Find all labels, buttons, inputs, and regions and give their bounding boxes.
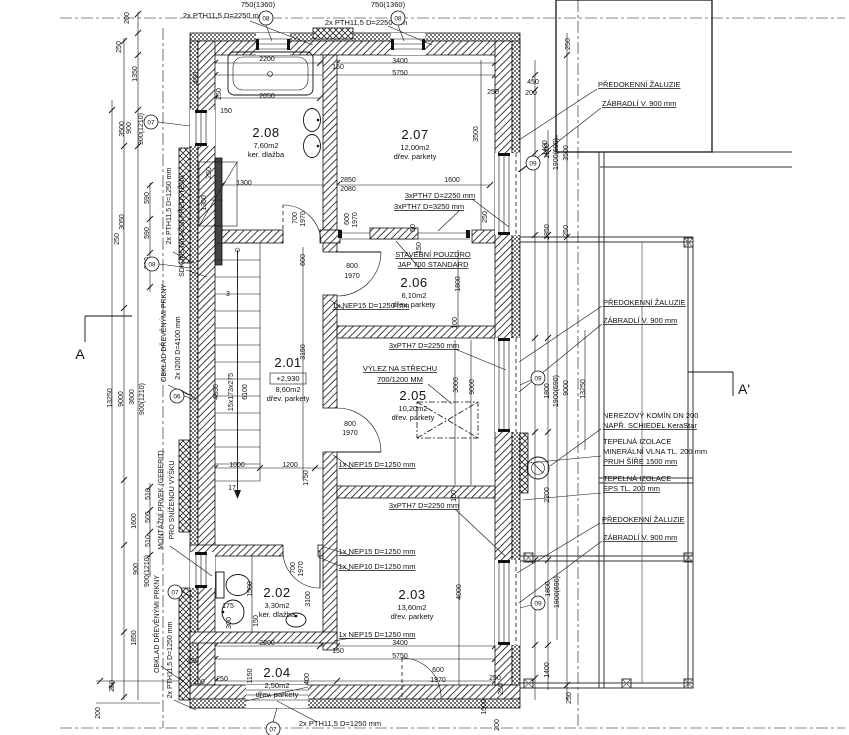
room-detail-label: 12,00m2	[400, 143, 429, 152]
left-note-label: 2x PTH11,5 D=1250 mm	[166, 167, 173, 244]
dim-label: 600	[300, 254, 307, 266]
dim-label: 900	[126, 122, 133, 134]
dim-label: 400	[304, 673, 311, 685]
dim-label: 900	[133, 563, 140, 575]
window-right-2	[495, 338, 520, 432]
section-mark-label: A	[75, 346, 85, 362]
right-note-label: TEPELNÁ IZOLACE	[603, 437, 671, 446]
left-note-label: MONTÁŽNÍ PRVEK (GEBERIT)	[156, 450, 165, 549]
dim-label: 1200	[282, 462, 298, 469]
dim-label: 1600	[131, 513, 138, 529]
window-right-3	[495, 560, 520, 645]
dim-label: 1970	[352, 212, 359, 228]
dim-label: 2200	[259, 640, 275, 647]
ref-marker-label: 09	[529, 160, 537, 167]
dim-label: 1850	[131, 630, 138, 646]
dim-label: 1800	[544, 143, 551, 159]
dim-label: 3600	[129, 389, 136, 405]
room-detail-label: dřev. parkety	[267, 394, 310, 403]
room-number-label: 2.07	[401, 127, 428, 142]
room-number-label: 2.03	[398, 587, 425, 602]
room-detail-label: ker. dlažba	[248, 150, 285, 159]
dim-label: 1970	[300, 211, 307, 227]
window-left-1	[190, 110, 215, 146]
chimney	[527, 457, 549, 479]
window-top-2	[391, 33, 425, 55]
dim-label: 250	[498, 683, 505, 695]
room-detail-label: +2,930	[276, 374, 299, 383]
dim-label: 4850	[213, 384, 220, 400]
room-number-label: 2.01	[274, 355, 301, 370]
dim-label: 700	[290, 562, 297, 574]
dim-label: 600	[344, 213, 351, 225]
right-note-label: PRUH ŠÍŘE 1500 mm	[603, 457, 677, 466]
dim-label: 200	[95, 707, 102, 719]
dim-label: 100	[452, 317, 459, 329]
dim-label: 50	[410, 224, 417, 232]
dim-label: 2050	[259, 93, 275, 100]
dim-label: 2850	[544, 224, 551, 240]
insulation-strip	[179, 440, 190, 532]
window-right-1	[495, 153, 520, 235]
plan-note-label: 1x NEP10 D=1250 mm	[339, 562, 416, 571]
right-note-label: PŘEDOKENNÍ ŽALUZIE	[602, 515, 685, 524]
dim-label: 250	[565, 38, 572, 50]
dim-label: 1970	[298, 561, 305, 577]
dim-label: 9000	[563, 380, 570, 396]
washbasin	[304, 109, 321, 132]
ref-marker-label: 08	[262, 15, 270, 22]
room-number-label: 2.06	[400, 275, 427, 290]
washbasin	[304, 135, 321, 158]
plan-note-label: 3xPTH7 D=2250 mm	[389, 341, 459, 350]
right-note-label: PŘEDOKENNÍ ŽALUZIE	[603, 298, 686, 307]
dim-label: 3500	[473, 126, 480, 142]
dim-label: 3	[226, 291, 230, 298]
right-note-label: EPS TL. 200 mm	[603, 484, 660, 493]
floor-plan-page: 2.082.072.062.012.052.022.032.047,60m2ke…	[0, 0, 849, 735]
right-note-label: TEPELNÁ IZOLACE	[603, 474, 671, 483]
pocket-door-jap	[338, 228, 470, 239]
plan-note-label: 2x PTH11,5 D=2250 mm	[183, 11, 265, 20]
room-detail-label: dřev. parkety	[391, 612, 434, 621]
dim-label: 250	[116, 41, 123, 53]
stairs	[215, 243, 260, 499]
dim-label: 900(1210)	[144, 555, 151, 587]
dim-label: 1970	[342, 430, 358, 437]
room-detail-label: 13,60m2	[397, 603, 426, 612]
dim-label: 900(1210)	[138, 113, 145, 145]
dim-label: 800	[346, 263, 358, 270]
dim-label: 250	[109, 680, 116, 692]
dim-label: 1900(690)	[553, 138, 560, 170]
dim-label: 1750	[303, 470, 310, 486]
insulation-strip	[179, 588, 190, 700]
window-left-2	[190, 552, 215, 588]
dim-label: 2200	[544, 487, 551, 503]
ref-marker-label: 07	[269, 726, 277, 733]
dim-label: 800	[344, 421, 356, 428]
plan-note-label: JAP 700 STANDARD	[398, 260, 470, 269]
plan-note-label: 1x NEP15 D=1250 mm	[339, 460, 416, 469]
dim-label: 1900(690)	[554, 576, 561, 608]
dim-label: 4000	[456, 584, 463, 600]
ref-marker-label: 07	[171, 589, 179, 596]
dim-label: 590	[144, 227, 151, 239]
dim-label: 250	[206, 167, 213, 179]
toilet	[216, 572, 250, 598]
left-note-label: 2x PTH11,5 D=1250 mm	[167, 621, 174, 698]
right-note-label: ZÁBRADLÍ V. 900 mm	[603, 316, 677, 325]
insulation-strip	[520, 433, 528, 493]
doors	[283, 205, 470, 697]
dim-label: 600	[432, 667, 444, 674]
dim-label: 17	[228, 485, 236, 492]
dim-label: 590	[144, 192, 151, 204]
dim-label: 150	[253, 615, 260, 627]
plan-note-label: 750(1360)	[371, 0, 406, 9]
dim-label: 100	[451, 490, 458, 502]
dim-label: 510	[145, 535, 152, 547]
ref-marker-label: 09	[534, 375, 542, 382]
room-number-label: 2.05	[399, 388, 426, 403]
dim-label: 1500	[481, 699, 488, 715]
room-number-label: 2.04	[263, 665, 290, 680]
dim-label: 250	[489, 675, 501, 682]
dim-label: 200	[525, 90, 537, 97]
dim-label: 200	[494, 719, 501, 731]
dim-label: 150	[416, 242, 423, 254]
dim-label: 250	[114, 233, 121, 245]
right-note-label: NAPŘ. SCHIEDEL KeraStar	[603, 421, 697, 430]
room-detail-label: 8,60m2	[275, 385, 300, 394]
right-note-label: NEREZOVÝ KOMÍN DN 200	[603, 411, 698, 420]
dim-label: 3000	[453, 377, 460, 393]
dim-label: 1350	[132, 66, 139, 82]
plan-note-label: 1x NEP15 D=1250 mm	[333, 301, 410, 310]
dim-label: 1970	[344, 273, 360, 280]
ref-marker-label: 09	[534, 600, 542, 607]
right-note-label: PŘEDOKENNÍ ŽALUZIE	[598, 80, 681, 89]
room-detail-label: dřev. parkety	[394, 152, 437, 161]
dim-label: 5750	[392, 653, 408, 660]
dim-label: 2200	[259, 56, 275, 63]
dim-label: 1500	[247, 581, 254, 597]
plan-note-label: 1x NEP15 D=1250 mm	[339, 547, 416, 556]
dim-label: 1800	[545, 581, 552, 597]
plan-note-label: 3xPTH7 D=3250 mm	[394, 202, 464, 211]
dim-label: 250	[487, 89, 499, 96]
left-note-label: OBKLAD DŘEVĚNÝMI PRKNY	[152, 575, 161, 673]
dim-label: 150	[220, 108, 232, 115]
dim-label: 9000	[118, 391, 125, 407]
room-detail-label: 10,20m2	[398, 404, 427, 413]
room-detail-label: 7,60m2	[253, 141, 278, 150]
dim-label: 1300	[201, 195, 208, 211]
ref-marker-label: 06	[173, 393, 181, 400]
floor-plan-canvas: 2.082.072.062.012.052.022.032.047,60m2ke…	[0, 0, 849, 735]
dim-label: 1800	[544, 383, 551, 399]
dim-label: 700	[292, 212, 299, 224]
plan-note-label: VÝLEZ NA STŘECHU	[363, 364, 437, 373]
room-number-label: 2.08	[252, 125, 279, 140]
dim-label: 13250	[107, 388, 114, 408]
dim-label: 900(1210)	[139, 383, 146, 415]
right-note-label: ZÁBRADLÍ V. 900 mm	[603, 533, 677, 542]
dim-label: 200	[193, 679, 205, 686]
room-detail-label: dřev. parkety	[256, 690, 299, 699]
plan-note-label: STAVEBNÍ POUZDRO	[395, 250, 471, 259]
dim-label: 250	[566, 692, 573, 704]
dim-label: 3100	[305, 591, 312, 607]
ref-marker-label: 07	[147, 119, 155, 126]
room-number-label: 2.02	[263, 585, 290, 600]
dim-label: 175	[222, 603, 234, 610]
dim-label: 1600	[444, 177, 460, 184]
dim-label: 1900(690)	[553, 375, 560, 407]
room-detail-label: dřev. parkety	[392, 413, 435, 422]
dim-label: 1970	[430, 677, 446, 684]
dim-label: 1000	[229, 462, 245, 469]
ref-marker-label: 08	[148, 261, 156, 268]
ref-marker-label: 08	[394, 15, 402, 22]
dim-label: 505	[145, 511, 152, 523]
plan-note-label: 3xPTH7 D=2250 mm	[389, 501, 459, 510]
dim-label: 5750	[392, 70, 408, 77]
plan-note-label: 3xPTH7 D=2250 mm	[405, 191, 475, 200]
dim-label: 250	[216, 88, 223, 100]
room-detail-label: 3,30m2	[264, 601, 289, 610]
room-detail-label: 2,50m2	[264, 681, 289, 690]
plan-note-label: 1x NEP15 D=1250 mm	[339, 630, 416, 639]
dim-label: 3150	[300, 344, 307, 360]
dim-label: 150	[332, 64, 344, 71]
windows	[190, 33, 520, 708]
dim-label: 9000	[469, 379, 476, 395]
dim-label: 13250	[580, 379, 587, 399]
dim-label: 450	[527, 79, 539, 86]
left-note-label: OBKLAD DŘEVĚNÝMI PRKNY	[159, 284, 168, 382]
dim-label: 510	[145, 488, 152, 500]
left-note-label: PRO SNÍŽENOU VÝŠKU	[167, 461, 176, 540]
dim-label: 3500	[563, 145, 570, 161]
insulation-strip	[313, 28, 353, 39]
dim-label: 250	[216, 676, 228, 683]
dim-label: 150	[332, 648, 344, 655]
plan-note-label: 2x PTH11,5 D=1250 mm	[299, 719, 381, 728]
left-note-label: 2x I200 D=4100 mm	[175, 316, 182, 379]
room-detail-label: ker. dlažba	[259, 610, 296, 619]
dim-label: 3500	[119, 121, 126, 137]
dim-label: 2850	[340, 177, 356, 184]
right-note-label: ZÁBRADLÍ V. 900 mm	[602, 99, 676, 108]
dim-label: 3400	[392, 58, 408, 65]
plan-note-label: 750(1360)	[241, 0, 276, 9]
dim-label: 250	[563, 225, 570, 237]
dim-label: 1150	[247, 668, 254, 683]
dim-label: 450	[193, 72, 200, 84]
dim-label: 3400	[392, 640, 408, 647]
dim-label: 1400	[544, 662, 551, 678]
dim-label: 1300	[236, 180, 252, 187]
left-note-label: SDK INSTALAČNÍ PŘEDSTĚNA	[177, 175, 186, 277]
section-mark-label: A'	[738, 381, 750, 397]
dim-label: 1800	[455, 276, 462, 292]
dim-label: 15x173x275	[228, 373, 235, 411]
dim-label: 3050	[119, 214, 126, 230]
dim-label: 250	[482, 211, 489, 223]
dim-label: 6100	[242, 384, 249, 400]
dim-label: 2080	[340, 186, 356, 193]
dim-label: 200	[124, 12, 131, 24]
room-detail-label: 6,10m2	[401, 291, 426, 300]
dim-label: 300	[226, 617, 233, 629]
sdk-installation-wall	[215, 158, 222, 265]
right-note-label: MINERÁLNÍ VLNA TL. 200 mm	[603, 447, 707, 456]
plan-note-label: 700/1200 MM	[377, 375, 423, 384]
dim-label: 450	[187, 658, 199, 665]
